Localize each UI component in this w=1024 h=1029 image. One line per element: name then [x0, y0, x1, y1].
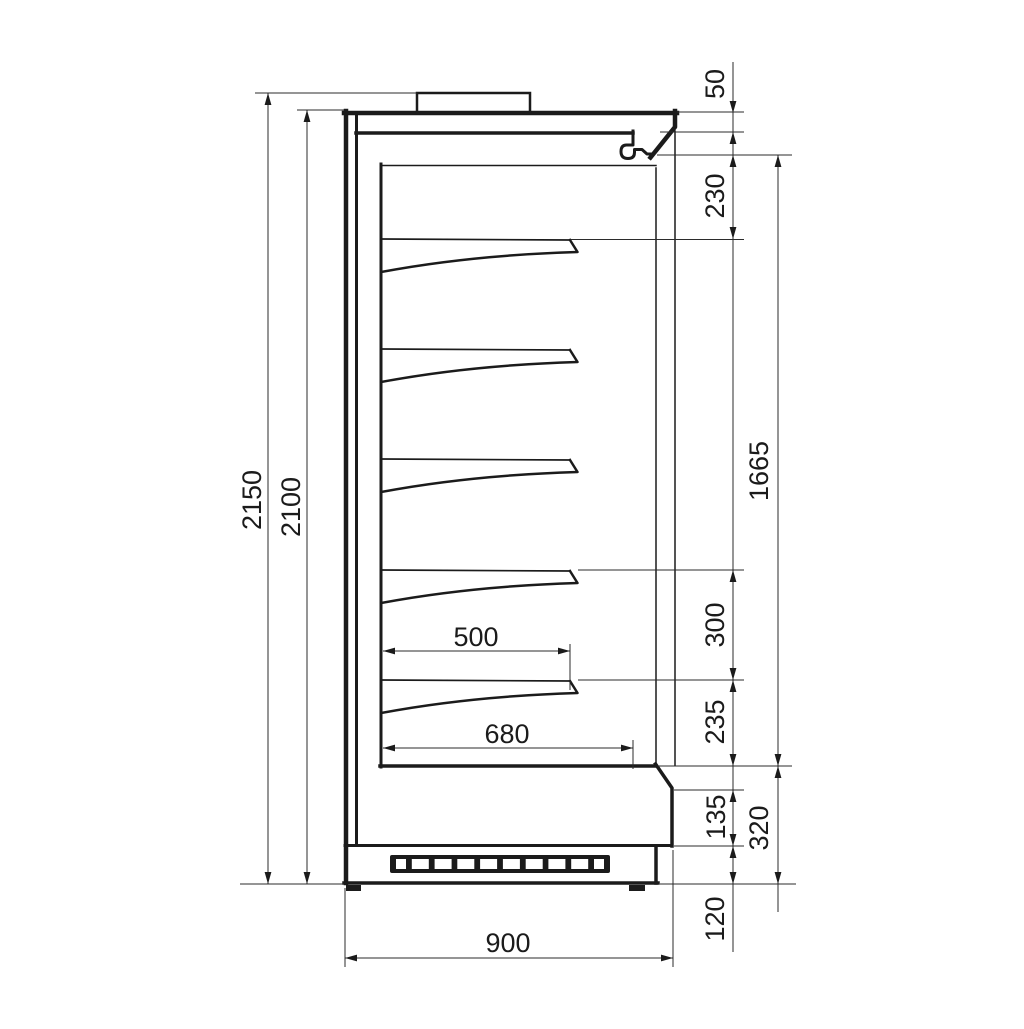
dim-label-well-depth: 680 — [484, 719, 529, 749]
foot-right — [629, 885, 645, 891]
shelf-3-top — [381, 459, 570, 460]
dim-label-opening-height: 1665 — [744, 441, 774, 501]
shelf-4-profile — [381, 571, 578, 603]
vent-slot — [548, 859, 565, 869]
canopy-front-slant — [651, 111, 676, 158]
vent-slot — [435, 859, 452, 869]
dimension-arrowhead — [775, 754, 782, 766]
dimension-arrowhead — [730, 227, 737, 239]
vent-slot — [526, 859, 543, 869]
shelf-3-profile — [381, 460, 578, 492]
dim-label-shelf-spacing: 300 — [700, 602, 730, 647]
dim-label-top-clearance: 230 — [700, 173, 730, 218]
shelf-4-top — [381, 570, 570, 571]
shelf-1-profile — [381, 240, 578, 272]
top-unit-box — [417, 93, 530, 113]
dimension-arrowhead — [730, 570, 737, 582]
vent-slot — [396, 859, 406, 869]
shelf-5-top — [381, 680, 570, 681]
vent-slot — [594, 859, 604, 869]
foot-left — [346, 885, 361, 891]
dimension-labels: 2150 2100 50 230 1665 300 235 135 320 12… — [237, 69, 774, 958]
dimension-arrowhead — [730, 754, 737, 766]
front-bumper-notch — [656, 764, 673, 846]
vent-slot — [480, 859, 497, 869]
dim-label-bottom-clearance: 235 — [700, 699, 730, 744]
dimension-arrowhead — [304, 872, 311, 884]
dimension-arrowhead — [661, 955, 673, 962]
shelf-1-top — [381, 239, 570, 240]
dim-label-body-height: 2100 — [276, 477, 306, 537]
dimension-arrowhead — [730, 132, 737, 144]
dim-label-base-section-height: 320 — [744, 805, 774, 850]
dimension-arrowhead — [304, 110, 311, 122]
dim-label-overall-depth: 900 — [485, 928, 530, 958]
dimension-arrowhead — [730, 668, 737, 680]
dimension-arrowhead — [730, 846, 737, 858]
dimension-arrowhead — [775, 872, 782, 884]
dimension-arrowhead — [775, 766, 782, 778]
vent-slot — [412, 859, 429, 869]
dimension-arrowhead — [730, 680, 737, 692]
shelf-5-profile — [381, 681, 578, 713]
shelf-2-top — [381, 349, 570, 350]
dimension-arrowhead — [621, 745, 633, 752]
air-outlet-hook-profile — [621, 131, 651, 159]
dim-label-plinth-height: 120 — [700, 896, 730, 941]
shelf-2-profile — [381, 350, 578, 382]
dim-label-shelf-depth: 500 — [453, 622, 498, 652]
dim-label-canopy-height: 50 — [700, 69, 730, 99]
dimension-arrowhead — [730, 101, 737, 113]
dimension-arrowhead — [383, 648, 395, 655]
dimension-arrowhead — [730, 155, 737, 167]
dimension-arrowhead — [383, 745, 395, 752]
dim-label-overall-height: 2150 — [237, 470, 267, 530]
vent-slot — [571, 859, 588, 869]
technical-drawing: 2150 2100 50 230 1665 300 235 135 320 12… — [0, 0, 1024, 1024]
dim-label-bumper-height: 135 — [701, 794, 731, 839]
dimension-arrowhead — [558, 648, 570, 655]
dimension-arrowhead — [265, 872, 272, 884]
dimension-arrowhead — [265, 93, 272, 105]
dimension-arrowhead — [345, 955, 357, 962]
cabinet-structure — [344, 93, 677, 891]
dimension-arrowhead — [775, 155, 782, 167]
dimension-arrowhead — [730, 872, 737, 884]
vent-slot — [503, 859, 520, 869]
drawing-canvas: 2150 2100 50 230 1665 300 235 135 320 12… — [0, 0, 1024, 1024]
vent-slot — [457, 859, 474, 869]
